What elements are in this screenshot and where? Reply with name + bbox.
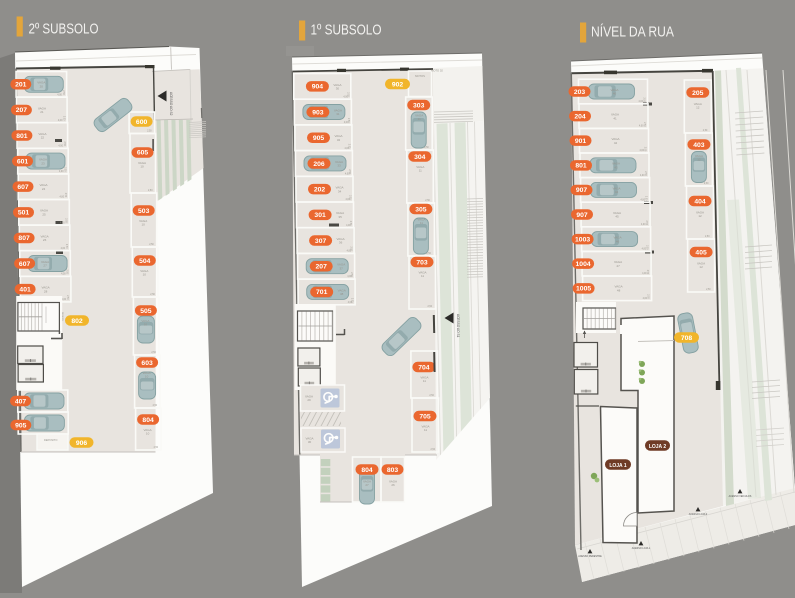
svg-text:403: 403 [693, 142, 705, 149]
svg-text:11: 11 [423, 379, 426, 383]
svg-text:10: 10 [140, 165, 144, 169]
svg-text:2,50: 2,50 [151, 352, 156, 354]
svg-text:404: 404 [694, 198, 706, 205]
svg-text:4,00: 4,00 [62, 299, 67, 301]
svg-text:907: 907 [576, 212, 588, 219]
svg-text:2,50: 2,50 [643, 122, 645, 127]
svg-text:27: 27 [43, 264, 47, 268]
svg-text:10: 10 [145, 375, 149, 379]
svg-text:46: 46 [616, 239, 620, 243]
svg-text:2,50: 2,50 [349, 221, 351, 226]
svg-text:2,50: 2,50 [62, 116, 64, 121]
svg-text:2,50: 2,50 [703, 130, 708, 132]
svg-text:501: 501 [18, 210, 30, 217]
svg-text:25: 25 [42, 213, 46, 217]
svg-text:4,00: 4,00 [61, 248, 66, 250]
svg-text:ACESSO AO S1: ACESSO AO S1 [456, 314, 460, 338]
svg-text:807: 807 [18, 235, 30, 242]
svg-text:703: 703 [416, 259, 428, 266]
svg-text:2,50: 2,50 [150, 294, 155, 296]
svg-text:203: 203 [574, 89, 586, 96]
svg-text:2,50: 2,50 [706, 289, 711, 291]
svg-text:2,50: 2,50 [350, 272, 352, 277]
svg-text:20: 20 [40, 85, 44, 89]
svg-text:41: 41 [613, 116, 617, 120]
svg-text:202: 202 [314, 186, 326, 193]
svg-text:704: 704 [418, 364, 430, 371]
svg-text:904: 904 [312, 84, 324, 91]
svg-text:2,50: 2,50 [153, 405, 158, 407]
svg-text:32: 32 [337, 138, 341, 142]
svg-text:907: 907 [576, 187, 588, 194]
svg-text:42: 42 [614, 141, 618, 145]
svg-text:802: 802 [71, 318, 83, 325]
svg-text:405: 405 [695, 249, 707, 256]
svg-text:MOTO 02: MOTO 02 [431, 69, 443, 73]
svg-text:12: 12 [697, 158, 701, 162]
svg-text:2,50: 2,50 [348, 169, 350, 174]
svg-text:2,50: 2,50 [426, 253, 431, 255]
svg-text:600: 600 [136, 119, 148, 126]
svg-text:804: 804 [361, 467, 373, 474]
svg-text:ACESSO LOJA 1: ACESSO LOJA 1 [632, 547, 651, 550]
svg-text:RESERV.: RESERV. [61, 312, 63, 322]
svg-text:2,50: 2,50 [424, 147, 429, 149]
svg-text:ACESSO LOJA 2: ACESSO LOJA 2 [689, 513, 708, 516]
svg-text:2,50: 2,50 [64, 167, 66, 172]
svg-text:2,50: 2,50 [64, 193, 66, 198]
svg-text:11: 11 [421, 274, 424, 278]
svg-text:708: 708 [681, 335, 693, 342]
svg-text:2,50: 2,50 [646, 245, 648, 250]
svg-text:207: 207 [16, 107, 28, 114]
svg-text:DEPOSITO: DEPOSITO [44, 438, 57, 442]
svg-text:2,50: 2,50 [62, 90, 64, 95]
svg-text:2,50: 2,50 [65, 244, 67, 249]
svg-text:304: 304 [414, 154, 426, 161]
svg-text:2,50: 2,50 [63, 142, 65, 147]
svg-text:801: 801 [575, 163, 587, 170]
svg-text:ACESSO VEICULOS: ACESSO VEICULOS [729, 495, 752, 498]
svg-text:4,00: 4,00 [61, 274, 66, 276]
svg-text:40: 40 [613, 92, 617, 96]
svg-text:2,50: 2,50 [704, 183, 709, 185]
svg-text:10: 10 [146, 432, 150, 436]
svg-text:905: 905 [313, 135, 325, 142]
svg-text:28: 28 [44, 289, 48, 293]
svg-text:12: 12 [699, 265, 703, 269]
svg-text:1004: 1004 [576, 261, 591, 268]
svg-text:503: 503 [138, 208, 150, 215]
svg-text:29: 29 [307, 398, 311, 402]
svg-text:1003: 1003 [575, 236, 590, 243]
svg-text:LOJA 1: LOJA 1 [609, 463, 627, 469]
svg-text:47: 47 [616, 264, 620, 268]
svg-text:705: 705 [419, 413, 431, 420]
svg-text:804: 804 [142, 417, 154, 424]
svg-text:2,50: 2,50 [147, 131, 152, 133]
svg-text:2,50: 2,50 [643, 98, 645, 103]
svg-text:2,50: 2,50 [148, 190, 153, 192]
svg-text:603: 603 [141, 360, 153, 367]
svg-text:31: 31 [336, 112, 340, 116]
svg-text:2,50: 2,50 [429, 395, 434, 397]
svg-text:301: 301 [314, 212, 326, 219]
svg-text:207: 207 [316, 264, 328, 271]
svg-text:607: 607 [19, 261, 31, 268]
svg-text:11: 11 [419, 169, 422, 173]
svg-text:2,50: 2,50 [346, 92, 348, 97]
svg-text:1005: 1005 [576, 286, 591, 293]
svg-text:10: 10 [144, 323, 148, 327]
svg-text:34: 34 [338, 189, 342, 193]
svg-text:12: 12 [698, 214, 702, 218]
svg-text:MOTOS: MOTOS [415, 74, 425, 78]
svg-text:205: 205 [692, 90, 704, 97]
svg-text:24: 24 [42, 187, 46, 191]
svg-text:2,50: 2,50 [647, 294, 649, 299]
svg-text:4,00: 4,00 [58, 120, 63, 122]
svg-text:4,00: 4,00 [58, 146, 63, 148]
svg-text:LOJA 2: LOJA 2 [649, 444, 667, 450]
svg-text:803: 803 [387, 467, 399, 474]
svg-text:33: 33 [337, 164, 341, 168]
svg-text:505: 505 [140, 308, 152, 315]
svg-text:45: 45 [615, 215, 619, 219]
svg-text:204: 204 [574, 113, 586, 120]
svg-text:905: 905 [15, 422, 27, 429]
svg-text:22: 22 [41, 136, 45, 140]
svg-text:2,50: 2,50 [645, 221, 647, 226]
svg-text:201: 201 [15, 82, 27, 89]
svg-text:2,50: 2,50 [425, 200, 430, 202]
svg-text:407: 407 [15, 398, 27, 405]
svg-text:305: 305 [415, 206, 427, 213]
svg-text:2,50: 2,50 [644, 147, 646, 152]
svg-text:2,50: 2,50 [645, 196, 647, 201]
svg-text:36: 36 [339, 241, 343, 245]
svg-text:303: 303 [413, 102, 425, 109]
svg-text:2,50: 2,50 [347, 118, 349, 123]
svg-text:307: 307 [315, 238, 327, 245]
svg-text:701: 701 [316, 289, 328, 296]
svg-text:11: 11 [420, 221, 423, 225]
svg-text:2,50: 2,50 [349, 195, 351, 200]
svg-text:26: 26 [391, 483, 395, 487]
svg-text:30: 30 [308, 440, 312, 444]
svg-text:2,50: 2,50 [65, 218, 67, 223]
svg-text:4,00: 4,00 [57, 94, 62, 96]
svg-text:ACESSO PEDESTRE: ACESSO PEDESTRE [578, 555, 602, 558]
svg-text:10: 10 [143, 273, 147, 277]
svg-text:12: 12 [696, 106, 700, 110]
svg-text:903: 903 [312, 109, 324, 116]
svg-text:401: 401 [19, 286, 31, 293]
svg-text:206: 206 [313, 161, 325, 168]
svg-text:504: 504 [139, 258, 151, 265]
svg-text:NÍVEL DA RUA: NÍVEL DA RUA [591, 24, 674, 41]
svg-text:2,50: 2,50 [66, 295, 68, 300]
svg-text:27: 27 [365, 483, 369, 487]
svg-text:23: 23 [41, 161, 45, 165]
svg-text:4,00: 4,00 [60, 197, 65, 199]
svg-text:2,50: 2,50 [350, 247, 352, 252]
svg-text:37: 37 [340, 266, 344, 270]
svg-text:1º SUBSOLO: 1º SUBSOLO [311, 22, 382, 39]
svg-text:4,00: 4,00 [60, 222, 65, 224]
svg-text:801: 801 [16, 133, 28, 140]
svg-text:4,00: 4,00 [59, 171, 64, 173]
svg-text:607: 607 [17, 184, 29, 191]
svg-text:10: 10 [142, 223, 146, 227]
svg-text:2,50: 2,50 [705, 236, 710, 238]
svg-text:11: 11 [424, 428, 427, 432]
svg-text:902: 902 [392, 81, 404, 88]
svg-text:2,50: 2,50 [149, 244, 154, 246]
svg-text:26: 26 [43, 238, 47, 242]
svg-text:2,50: 2,50 [351, 298, 353, 303]
svg-text:2,50: 2,50 [431, 449, 436, 451]
svg-text:43: 43 [614, 166, 618, 170]
svg-text:ACESSO AO S2: ACESSO AO S2 [169, 92, 173, 116]
svg-text:901: 901 [575, 138, 587, 145]
svg-text:605: 605 [137, 150, 149, 157]
svg-text:601: 601 [17, 158, 29, 165]
svg-text:2,50: 2,50 [646, 270, 648, 275]
svg-text:21: 21 [40, 110, 44, 114]
svg-text:2,50: 2,50 [428, 306, 433, 308]
svg-text:48: 48 [617, 289, 621, 293]
svg-text:35: 35 [338, 215, 342, 219]
svg-text:2,50: 2,50 [154, 447, 159, 449]
svg-text:30: 30 [336, 87, 340, 91]
svg-text:906: 906 [76, 440, 88, 447]
svg-text:2,50: 2,50 [348, 144, 350, 149]
svg-text:11: 11 [418, 117, 421, 121]
svg-text:38: 38 [340, 292, 344, 296]
svg-text:44: 44 [615, 190, 619, 194]
svg-text:2,50: 2,50 [66, 270, 68, 275]
svg-text:2º SUBSOLO: 2º SUBSOLO [29, 21, 99, 38]
svg-text:2,50: 2,50 [644, 171, 646, 176]
